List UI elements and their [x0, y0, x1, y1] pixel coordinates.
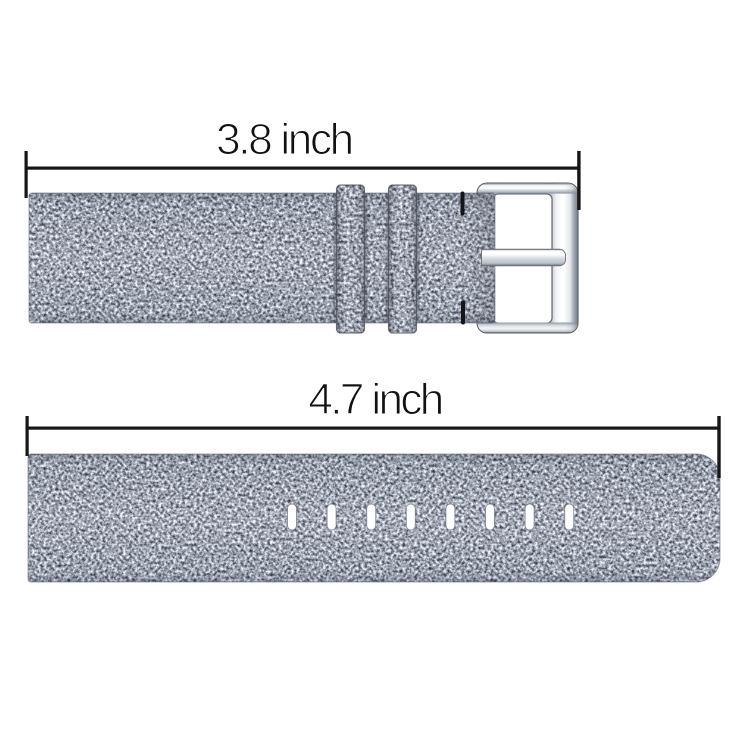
svg-text:4.7 inch: 4.7 inch — [308, 375, 441, 424]
svg-text:3.8 inch: 3.8 inch — [216, 115, 352, 164]
